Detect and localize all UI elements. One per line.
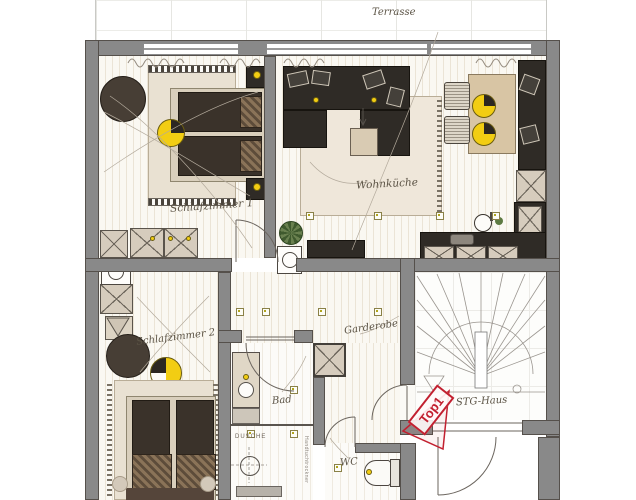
bedroom2-wardrobe	[100, 284, 133, 314]
terrace-area	[95, 0, 547, 41]
bedroom2-pillow-1	[132, 454, 172, 490]
wardrobe-knob-1	[150, 236, 155, 241]
bedroom1-chair	[100, 76, 146, 122]
spotlight	[290, 386, 298, 394]
nightstand-lamp-1	[253, 71, 261, 79]
wall-mid-left	[85, 258, 232, 272]
bedroom1-rug-fringe-top	[148, 65, 236, 73]
wc-label: WC	[340, 456, 359, 469]
spotlight	[374, 212, 382, 220]
pouf-2	[200, 476, 216, 492]
place-setting-2	[472, 122, 496, 146]
spotlight	[236, 308, 244, 316]
bathroom-label: Bad	[272, 394, 293, 407]
toilet-tank	[390, 459, 400, 487]
dining-chair-1	[444, 82, 470, 110]
wall-wc-right	[400, 443, 416, 500]
hallway-floor-narrow	[325, 377, 346, 443]
spotlight	[492, 212, 500, 220]
wall-bottom-right-pier	[538, 437, 560, 500]
window-3	[430, 43, 532, 55]
wall-bath-top-right	[294, 330, 313, 343]
bedroom1-lamp	[157, 119, 185, 147]
bedroom2-rug-fringe-left	[107, 382, 112, 496]
wall-stairwell-left	[400, 258, 415, 385]
vanity-lamp	[243, 374, 249, 380]
vanity-shelf	[232, 408, 260, 424]
sofa-left-leg	[283, 110, 327, 148]
wardrobe-cabinet-3	[164, 228, 198, 258]
bedroom2-headboard	[126, 488, 214, 500]
sofa-dot-1	[313, 97, 319, 103]
wall-bedroom1-living	[264, 56, 276, 258]
dining-chair-2	[444, 116, 470, 144]
towel-radiator-label: Handtuchtrockner	[303, 436, 309, 483]
wardrobe-knob-2	[168, 236, 173, 241]
terrace-label: Terrasse	[372, 7, 416, 18]
window-2	[266, 43, 428, 55]
shower-partition	[231, 424, 313, 426]
coffee-table	[350, 128, 378, 156]
kitchen-tall-unit	[516, 170, 546, 202]
nightstand-lamp-2	[253, 183, 261, 191]
shower-bench	[236, 486, 282, 497]
bedroom1-pillow-2	[240, 140, 262, 172]
wall-mid-right	[296, 258, 560, 272]
toilet-dot	[366, 469, 372, 475]
spotlight	[436, 212, 444, 220]
wardrobe-knob-3	[186, 236, 191, 241]
wardrobe-cabinet-2	[130, 228, 164, 258]
spotlight	[318, 308, 326, 316]
shower-drain	[240, 456, 260, 476]
hallway-floor-lower	[346, 343, 400, 443]
spotlight	[306, 212, 314, 220]
sofa-pillow-2	[311, 70, 331, 86]
wall-bath-top-left	[218, 330, 242, 343]
window-1	[143, 43, 239, 55]
wall-bedroom2-hall	[218, 272, 231, 500]
kitchen-cabinet-v1	[518, 206, 542, 234]
spotlight	[262, 308, 270, 316]
bathroom-sink	[238, 382, 254, 398]
cooktop	[450, 234, 474, 245]
plant	[279, 221, 303, 245]
tv-sideboard	[307, 240, 365, 258]
floor-plan: Terrasse	[0, 0, 636, 500]
spotlight	[290, 430, 298, 438]
bathroom-vanity	[232, 352, 260, 408]
wardrobe-cabinet-1	[100, 230, 128, 258]
shower-label: DUSCHE	[235, 434, 266, 440]
bedroom1-pillow-1	[240, 96, 262, 128]
wall-bath-wc	[313, 377, 325, 445]
wall-right	[546, 40, 560, 437]
place-setting-1	[472, 94, 496, 118]
spotlight	[374, 308, 382, 316]
shaft-column	[313, 343, 346, 377]
pouf-1	[112, 476, 128, 492]
living-rug-fringe	[437, 98, 442, 212]
sofa-dot-2	[371, 97, 377, 103]
wall-stairwell-bottom-right	[522, 420, 560, 435]
